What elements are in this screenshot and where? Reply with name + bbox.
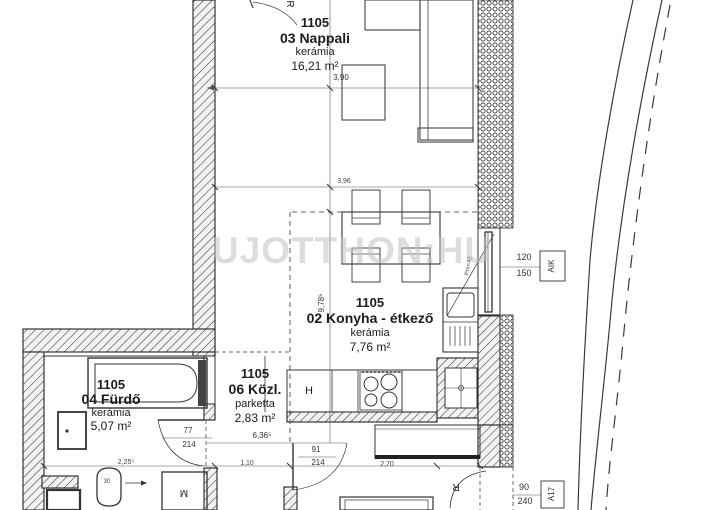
fridge-label: H [305,386,313,397]
corridor [215,212,478,490]
chair [352,248,380,282]
floor-plan-drawing [0,0,720,510]
nappali-floor: kerámia [295,47,334,58]
arrow-icon [141,481,147,486]
dim-toilet-offset: 30 [104,479,111,485]
radiator-label-bottom: R [452,481,459,491]
dining-set [342,190,440,282]
insulation-right-upper [478,0,513,228]
entry-door-code: A17 [548,487,556,501]
dim-bath-door-h: 214 [182,441,195,449]
dim-living-width: 3,90 [333,74,349,82]
kozl-area: 2,83 m² [235,412,276,424]
insulation-right-lower [500,315,513,425]
wall-bath-top [23,329,215,352]
dim-window-sill: 150 [516,269,531,278]
dim-entry-door-h: 240 [517,497,532,506]
stove [360,372,402,410]
wall-bath-door-jamb [204,404,215,420]
wall-pillar-hall-right [284,487,297,510]
furdo-area: 5,07 m² [91,420,132,432]
dim-bath-door-w: 77 [184,427,193,435]
furdo-floor: kerámia [91,408,130,419]
wall-pillar-hall-left [204,468,217,510]
wall-left-lower [23,352,44,510]
dim-flat-length: 9,78⁵ [318,294,326,313]
window-swing-line [447,234,494,316]
dim-hall-door-w: 91 [312,446,321,454]
bed [340,497,433,510]
insulation-pillar-br [500,425,513,467]
washbasin [58,412,86,449]
furdo-name: 04 Fürdő [81,392,140,406]
wall-pillar-bottom-right [478,425,500,467]
kitchen-sink [443,288,478,352]
konyha-area: 7,76 m² [350,341,391,353]
nappali-area: 16,21 m² [291,60,338,72]
wall-left-upper [193,0,215,356]
konyha-floor: kerámia [350,328,389,339]
sofa [365,0,473,142]
chair [402,248,430,282]
dim-entry-door-w: 90 [519,483,529,492]
nappali-name: 03 Nappali [280,31,350,45]
chair [402,190,430,224]
wall-right-lower [478,315,500,425]
kozl-unit: 1105 [241,367,269,380]
kozl-name: 06 Közl. [229,382,282,396]
dashed-boundary [606,5,670,510]
dim-kitchen-width: 3,96 [337,178,351,185]
dim-hall-door-h: 214 [311,459,324,467]
dim-bath-width: 2,25⁵ [118,459,135,466]
dim-window-width: 120 [516,253,531,262]
window-code: AIK [548,260,556,273]
washing-machine-label: M [180,487,188,497]
konyha-unit: 1105 [356,296,384,309]
dim-hall-length: 6,36⁵ [253,432,272,440]
radiator-label-top: R [284,0,294,7]
konyha-name: 02 Konyha - étkező [307,311,434,325]
furdo-unit: 1105 [97,378,125,391]
toilet [97,468,147,506]
shower-tray [47,490,80,510]
wall-kitchen-south [287,412,437,422]
vent-shaft [445,368,477,408]
dim-hall-width: 1,10 [240,460,254,467]
chair [352,190,380,224]
site-boundary-lines [578,0,670,510]
kozl-floor: parketta [235,399,275,410]
floor-plan-page: { "watermark": "UJOTTHON:HU", "rooms": {… [0,0,720,510]
wall-jog [42,476,78,488]
living-furniture [250,0,473,142]
dim-kitchen-depth: 2,70 [380,461,394,468]
nappali-unit: 1105 [301,16,329,29]
